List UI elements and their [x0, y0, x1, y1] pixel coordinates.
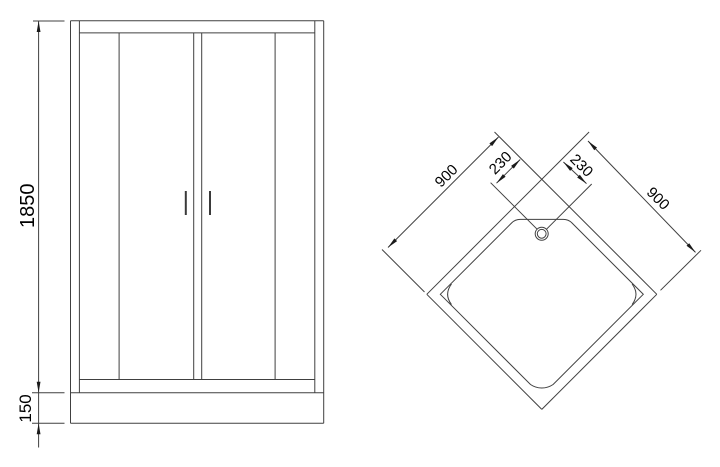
svg-text:1850: 1850 — [17, 183, 39, 228]
svg-text:150: 150 — [16, 394, 35, 422]
